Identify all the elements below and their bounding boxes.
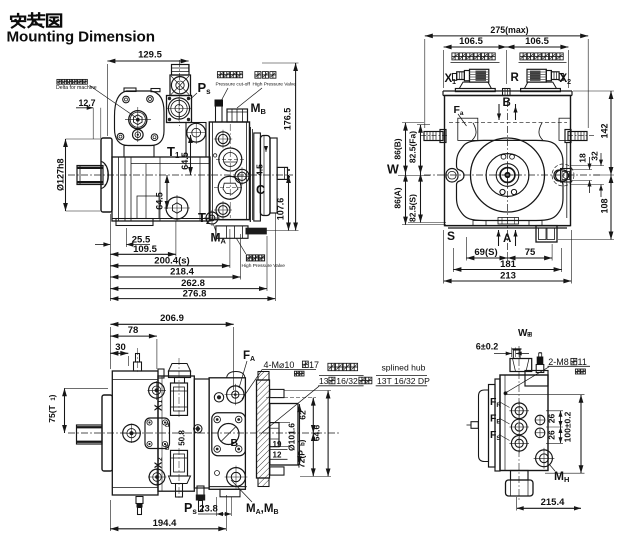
svg-text:109.5: 109.5 [133, 244, 157, 255]
svg-text:106.5: 106.5 [525, 36, 549, 47]
svg-text:): ) [297, 439, 307, 442]
svg-text:a: a [165, 420, 170, 429]
svg-text:64.5: 64.5 [180, 152, 190, 170]
svg-text:High Pressure Valve: High Pressure Valve [253, 82, 297, 88]
svg-text:W: W [387, 163, 399, 177]
svg-text:78: 78 [128, 325, 139, 336]
svg-text:107.6: 107.6 [276, 198, 286, 221]
svg-text:69(S): 69(S) [474, 247, 497, 258]
svg-text:4.5: 4.5 [255, 164, 265, 176]
svg-text:64.6: 64.6 [312, 424, 322, 441]
svg-text:72(P: 72(P [297, 450, 307, 468]
svg-text:R: R [511, 72, 520, 84]
svg-text:30: 30 [115, 342, 126, 353]
svg-text:64.5: 64.5 [155, 192, 165, 210]
svg-text:82.5(Fa): 82.5(Fa) [408, 131, 418, 163]
svg-text:Mounting Dimension: Mounting Dimension [7, 29, 155, 46]
svg-text:218.4: 218.4 [170, 266, 194, 277]
svg-text:X: X [154, 404, 165, 411]
svg-text:B: B [503, 97, 511, 109]
svg-text:2-M8: 2-M8 [548, 357, 569, 367]
svg-text:86(A): 86(A) [393, 187, 403, 208]
svg-text:19: 19 [273, 440, 282, 449]
svg-text:splined hub: splined hub [382, 363, 426, 373]
svg-text:26: 26 [547, 430, 557, 440]
svg-text:11: 11 [578, 357, 587, 367]
svg-text:32: 32 [590, 151, 600, 161]
svg-text:200.4(s): 200.4(s) [154, 255, 189, 266]
svg-text:X: X [154, 462, 165, 469]
svg-text:194.4: 194.4 [153, 518, 177, 529]
svg-text:181: 181 [500, 259, 517, 270]
svg-text:Ø127h8: Ø127h8 [56, 158, 66, 191]
svg-text:13T 16/32 DP: 13T 16/32 DP [377, 376, 430, 386]
svg-text:B: B [231, 437, 239, 449]
svg-text:129.5: 129.5 [138, 50, 162, 61]
svg-text:S: S [447, 229, 455, 243]
svg-text:b: b [165, 443, 170, 452]
svg-text:W: W [518, 328, 528, 339]
svg-text:16/32: 16/32 [336, 376, 358, 386]
svg-text:4-M⌀10: 4-M⌀10 [264, 360, 295, 370]
svg-text:206.9: 206.9 [160, 313, 184, 324]
svg-text:213: 213 [500, 271, 516, 282]
svg-text:275(max): 275(max) [490, 25, 528, 35]
svg-text:18: 18 [578, 153, 588, 163]
svg-text:6±0.2: 6±0.2 [476, 341, 498, 351]
svg-text:75(T: 75(T [47, 404, 57, 422]
svg-text:276.8: 276.8 [183, 288, 207, 299]
svg-text:215.4: 215.4 [541, 497, 565, 508]
svg-text:176.5: 176.5 [283, 108, 293, 131]
svg-text:12: 12 [273, 451, 282, 460]
svg-text:26: 26 [547, 414, 557, 424]
svg-text:106.5: 106.5 [459, 36, 483, 47]
svg-text:62: 62 [298, 410, 308, 420]
svg-text:High Pressure Valve: High Pressure Valve [242, 263, 286, 269]
svg-text:13: 13 [319, 376, 329, 386]
svg-text:C: C [256, 183, 265, 197]
svg-text:86(B): 86(B) [393, 138, 403, 159]
svg-text:Ø101.6: Ø101.6 [287, 423, 297, 451]
svg-text:23.8: 23.8 [199, 504, 218, 515]
svg-text:75: 75 [525, 247, 536, 258]
svg-text:50.8: 50.8 [178, 430, 187, 446]
svg-text:142: 142 [600, 123, 610, 138]
svg-text:): ) [47, 394, 57, 397]
svg-text:100±0.2: 100±0.2 [563, 411, 573, 442]
svg-text:17: 17 [309, 360, 319, 370]
svg-text:108: 108 [600, 198, 610, 213]
svg-text:Pressure cut-off: Pressure cut-off [216, 82, 251, 88]
svg-text:A: A [503, 233, 511, 245]
svg-text:82.5(S): 82.5(S) [408, 194, 418, 222]
